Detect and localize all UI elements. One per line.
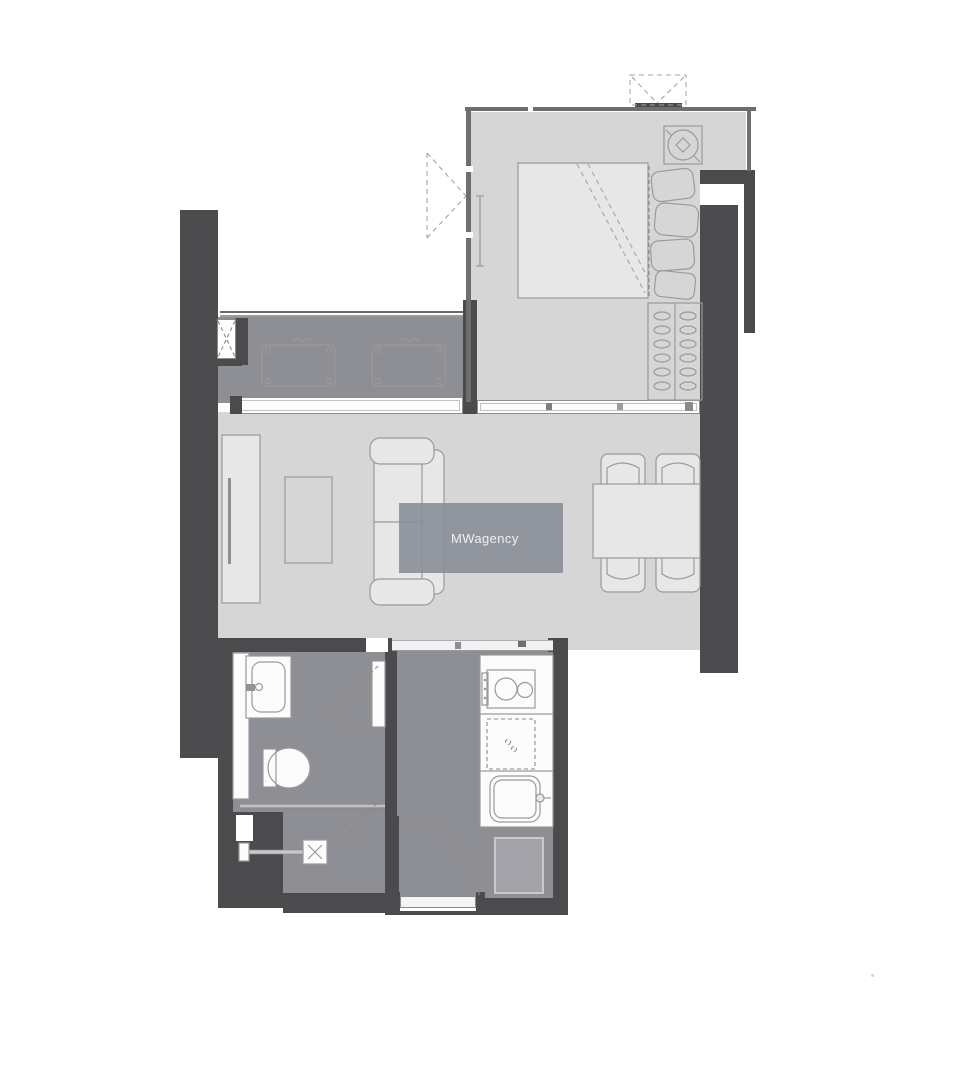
toilet [263, 748, 310, 788]
coffee-table [285, 477, 332, 563]
faucet [246, 684, 255, 691]
floor-plan: MWagency [0, 0, 962, 1080]
speck [871, 974, 874, 977]
watermark: MWagency [399, 503, 563, 573]
door-leaf [372, 661, 385, 727]
kitchen-fixtures [399, 655, 553, 898]
ac-unit [262, 338, 335, 386]
shower-arm [249, 850, 303, 854]
duct-shaft-hatch [218, 321, 235, 357]
curtain-rail [476, 196, 484, 266]
bathroom-fixtures [233, 653, 385, 864]
sink-faucet [536, 794, 544, 802]
window-swing-icon [630, 75, 686, 105]
watermark-label: MWagency [451, 531, 519, 546]
tv [228, 478, 231, 564]
ac-unit [372, 338, 445, 386]
bedroom-furniture [427, 75, 702, 400]
balcony-equipment [218, 321, 445, 386]
shower-door-swing [341, 817, 362, 848]
dining-set [593, 454, 700, 592]
bed [518, 163, 648, 298]
plant [664, 126, 702, 164]
tv-console [222, 435, 260, 603]
dining-table [593, 484, 700, 558]
window-swing-icon [427, 153, 466, 238]
shower [239, 800, 385, 864]
washbasin [246, 656, 291, 718]
pillows [650, 168, 699, 300]
bathroom-door [331, 661, 385, 728]
wardrobe [648, 303, 702, 400]
entrance-door-swing [399, 818, 479, 898]
shower-head [239, 843, 249, 861]
entry-cabinet [495, 838, 543, 893]
